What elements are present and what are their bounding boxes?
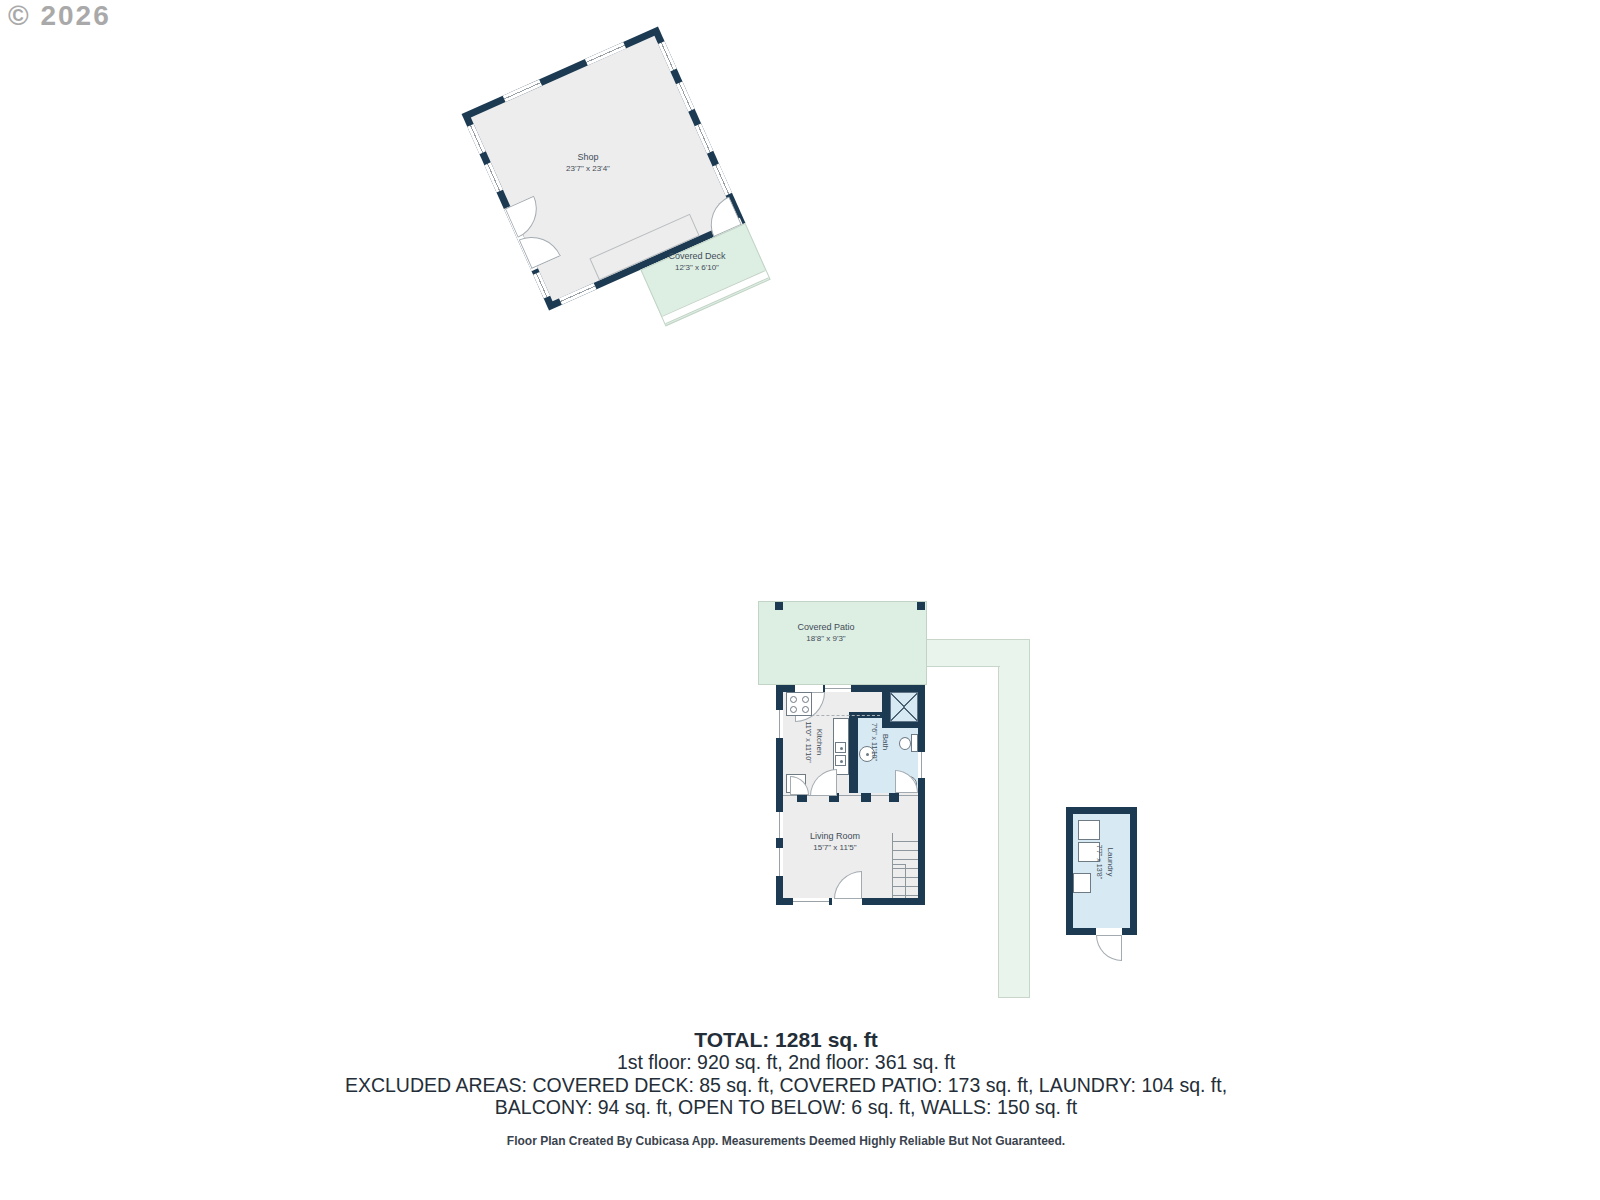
- window: [776, 710, 783, 738]
- room-dims: 7'7" x 13'8": [1095, 832, 1104, 892]
- patio-post: [775, 602, 783, 610]
- wall-post: [861, 793, 871, 802]
- laundry-label: Laundry 7'7" x 13'8": [1091, 832, 1115, 892]
- window: [918, 752, 925, 778]
- bath-label: Bath 7'6" x 11'10": [866, 712, 890, 772]
- room-dims: 11'0" x 11'10": [804, 712, 813, 772]
- room-dims: 15'7" x 11'5": [785, 843, 885, 853]
- measurement-summary: TOTAL: 1281 sq. ft 1st floor: 920 sq. ft…: [0, 1028, 1572, 1148]
- room-dims: 18'8" x 9'3": [776, 634, 876, 644]
- window: [776, 812, 783, 838]
- interior-wall: [849, 712, 858, 793]
- window: [825, 685, 851, 692]
- stair-landing-line: [892, 864, 906, 898]
- total-area: TOTAL: 1281 sq. ft: [0, 1028, 1572, 1051]
- floor-areas: 1st floor: 920 sq. ft, 2nd floor: 361 sq…: [0, 1051, 1572, 1074]
- door-opening: [795, 685, 823, 692]
- covered-patio-label: Covered Patio 18'8" x 9'3": [776, 622, 876, 644]
- excluded-areas-line2: BALCONY: 94 sq. ft, OPEN TO BELOW: 6 sq.…: [0, 1096, 1572, 1119]
- room-dims: 12'3" x 6'10": [647, 263, 747, 273]
- covered-deck-label: Covered Deck 12'3" x 6'10": [647, 251, 747, 273]
- window: [793, 898, 829, 905]
- room-dims: 7'6" x 11'10": [870, 712, 879, 772]
- wall-post: [889, 793, 899, 802]
- walkway: [998, 639, 1030, 998]
- walkway: [927, 639, 1000, 667]
- deck-edge-boards: [662, 270, 769, 324]
- kitchen-sink: [835, 755, 846, 766]
- living-room-label: Living Room 15'7" x 11'5": [785, 831, 885, 853]
- toilet-bowl: [899, 737, 911, 750]
- kitchen-sink: [835, 742, 846, 753]
- room-name: Kitchen: [814, 712, 824, 772]
- room-name: Shop: [538, 152, 638, 163]
- door-swing: [1096, 935, 1122, 961]
- shower: [890, 692, 918, 722]
- room-name: Covered Deck: [647, 251, 747, 262]
- room-name: Laundry: [1105, 832, 1115, 892]
- patio-post: [917, 602, 925, 610]
- window: [776, 848, 783, 876]
- kitchen-label: Kitchen 11'0" x 11'10": [800, 712, 824, 772]
- toilet-tank: [911, 734, 918, 752]
- room-name: Covered Patio: [776, 622, 876, 633]
- shop-label: Shop 23'7" x 23'4": [538, 152, 638, 174]
- door-opening: [1096, 928, 1122, 935]
- laundry-cabinet: [1073, 873, 1091, 893]
- disclaimer: Floor Plan Created By Cubicasa App. Meas…: [0, 1134, 1572, 1148]
- door-opening: [832, 898, 862, 905]
- room-name: Bath: [880, 712, 890, 772]
- copyright-watermark: © 2026: [8, 0, 111, 32]
- room-dims: 23'7" x 23'4": [538, 164, 638, 174]
- room-name: Living Room: [785, 831, 885, 842]
- floor-plan-page: { "watermark": "© 2026", "rooms": { "sho…: [0, 0, 1600, 1200]
- excluded-areas-line1: EXCLUDED AREAS: COVERED DECK: 85 sq. ft,…: [0, 1074, 1572, 1097]
